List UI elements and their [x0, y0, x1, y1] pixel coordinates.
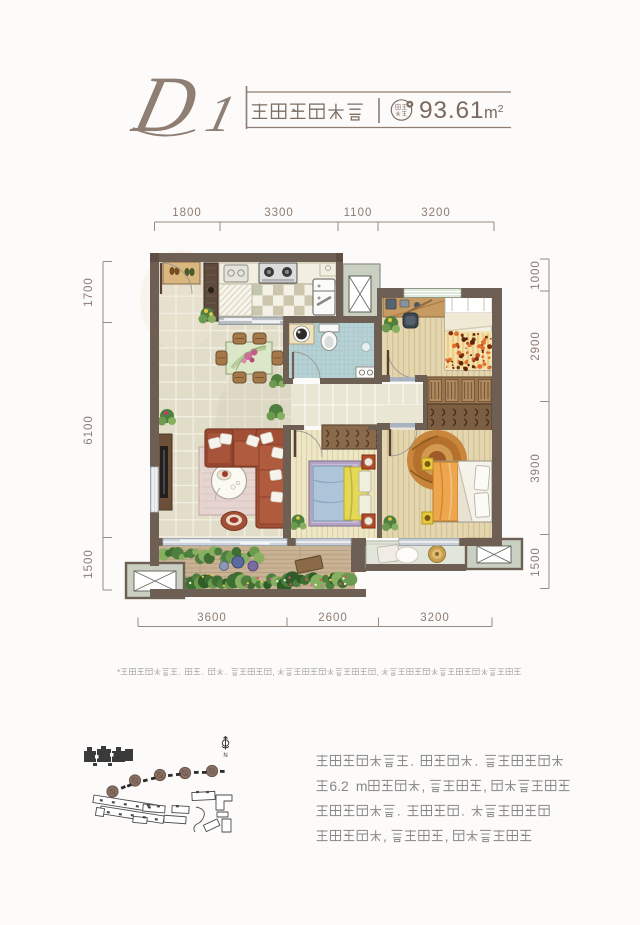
- svg-text:,: ,: [272, 668, 274, 677]
- svg-text:,: ,: [421, 778, 425, 794]
- svg-text:1700: 1700: [83, 277, 95, 307]
- svg-text:,: ,: [445, 828, 449, 844]
- svg-text:m: m: [356, 778, 368, 794]
- svg-text:,: ,: [383, 828, 387, 844]
- svg-text:3900: 3900: [530, 453, 542, 483]
- svg-text:3600: 3600: [197, 612, 227, 624]
- svg-text:1800: 1800: [172, 207, 202, 219]
- svg-text:1000: 1000: [530, 260, 542, 290]
- svg-text:2900: 2900: [530, 331, 542, 361]
- svg-text:1500: 1500: [530, 547, 542, 577]
- svg-text:6.2: 6.2: [329, 778, 349, 794]
- svg-text:93.61: 93.61: [419, 97, 484, 124]
- svg-text:,: ,: [483, 778, 487, 794]
- svg-text:1500: 1500: [83, 549, 95, 579]
- svg-text:2600: 2600: [318, 612, 348, 624]
- svg-text:3300: 3300: [264, 207, 294, 219]
- svg-text:,: ,: [377, 668, 379, 677]
- svg-text:3200: 3200: [421, 207, 451, 219]
- svg-text:6100: 6100: [83, 415, 95, 445]
- svg-text:N: N: [223, 753, 227, 759]
- svg-text:1100: 1100: [344, 207, 373, 219]
- svg-text:3200: 3200: [420, 612, 450, 624]
